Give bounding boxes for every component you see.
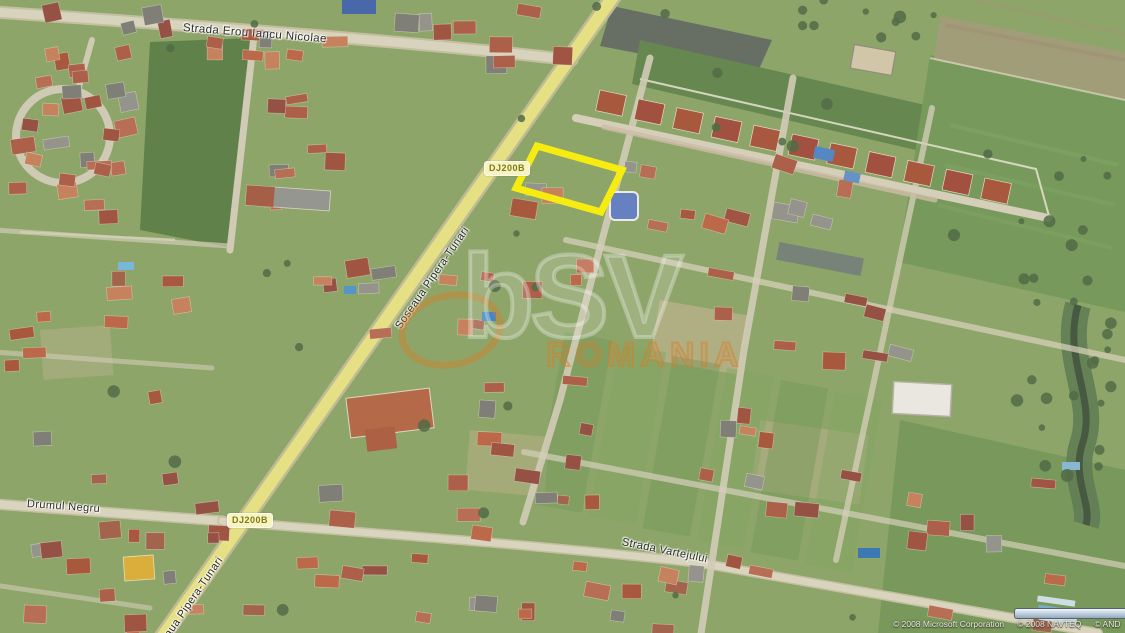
swimming-pool: [118, 262, 134, 270]
swimming-pool: [482, 312, 496, 321]
creek: [1074, 305, 1087, 525]
swimming-pool: [1062, 462, 1080, 470]
map-viewport[interactable]: Strada Erou Iancu Nicolae Soseaua Pipera…: [0, 0, 1125, 633]
yellow-building: [123, 555, 155, 581]
apartment-red-section: [245, 185, 274, 207]
white-flat-building: [892, 382, 952, 417]
aerial-imagery: [0, 0, 1125, 633]
blue-building-top: [342, 0, 376, 14]
copyright-attribution: © 2008 Microsoft Corporation © 2008 NAVT…: [893, 619, 1125, 629]
blue-roof-building: [610, 192, 638, 220]
terracotta-building-wing: [365, 426, 397, 451]
copyright-microsoft: © 2008 Microsoft Corporation: [893, 619, 1004, 629]
copyright-and: © AND: [1094, 619, 1120, 629]
dj200b-shield-south: DJ200B: [227, 513, 273, 528]
copyright-navteq: © 2008 NAVTEQ: [1017, 619, 1081, 629]
map-scrollbar[interactable]: [1014, 608, 1125, 619]
swimming-pool: [858, 548, 880, 558]
dj200b-shield-north: DJ200B: [484, 161, 530, 176]
fields-layer: [0, 0, 1125, 633]
blue-tarp: [344, 286, 356, 294]
